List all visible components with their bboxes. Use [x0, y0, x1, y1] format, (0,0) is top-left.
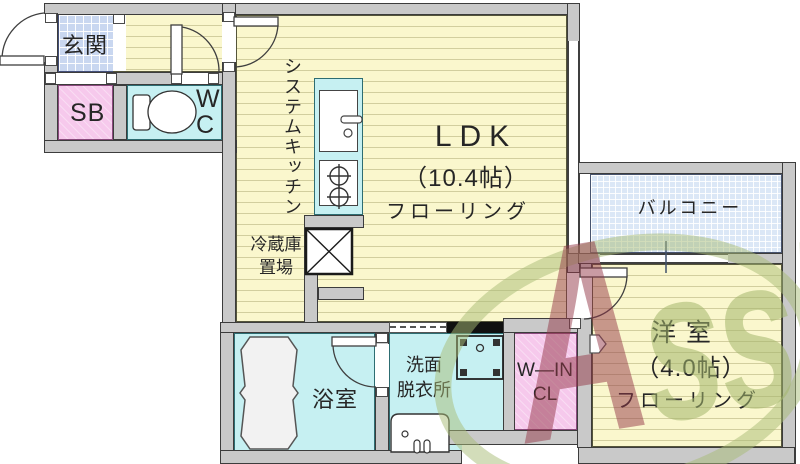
wc-door-leaf — [171, 25, 182, 74]
entrance-door-arc — [2, 13, 44, 59]
stove-burners — [327, 164, 351, 209]
floor-plan: 玄関 SB WC システムキッチン 冷蔵庫 置場 LDK （10.4帖） フロー… — [0, 0, 800, 464]
sink-faucet — [341, 116, 362, 123]
bath-label: 浴室 — [312, 382, 358, 414]
bath-door-leaf — [332, 337, 376, 346]
bathtub — [240, 337, 298, 449]
kitchen-label: システムキッチン — [279, 57, 305, 217]
toilet-bowl — [148, 91, 196, 133]
genkan-label: 玄関 — [62, 28, 108, 60]
wc-label: WC — [196, 86, 222, 138]
fridge-label-line1: 冷蔵庫 — [246, 230, 306, 255]
wc-door-arc — [182, 27, 219, 72]
fridge-label-line2: 置場 — [246, 253, 306, 278]
sb-label: SB — [70, 99, 105, 128]
ldk-size: （10.4帖） — [386, 158, 546, 193]
ldk-name: LDK — [396, 120, 556, 154]
ldk-door-leaf — [234, 17, 278, 26]
bath-door-arc — [333, 345, 376, 387]
entrance-door-leaf — [0, 56, 44, 65]
ldk-door-arc — [236, 25, 278, 67]
watermark-logo: Assist — [492, 147, 800, 464]
fridge-space-box — [306, 229, 352, 274]
sink-drain — [344, 129, 352, 137]
